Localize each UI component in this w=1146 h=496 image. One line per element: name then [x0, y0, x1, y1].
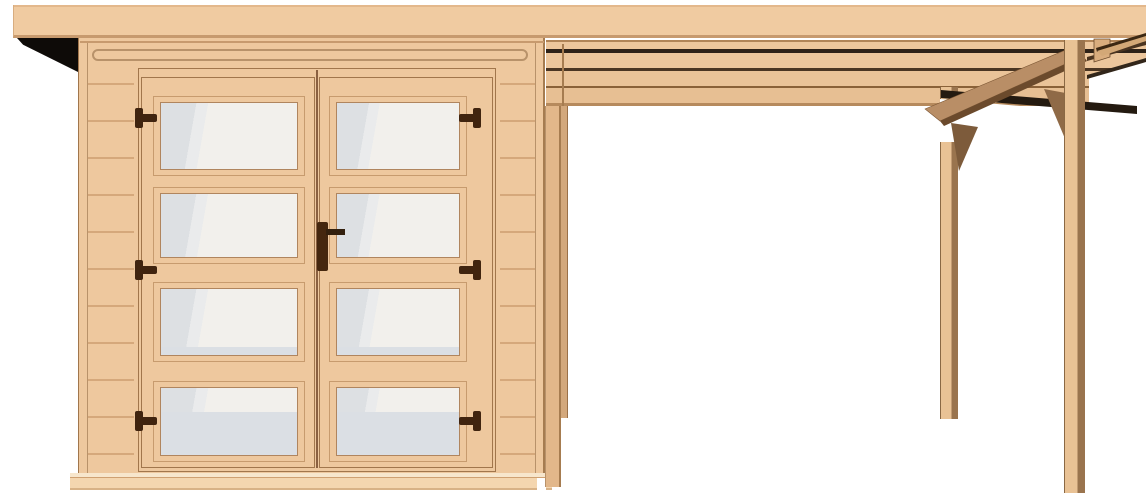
canopy-post-front-right [1064, 40, 1085, 493]
canopy-post-rear-left [561, 106, 568, 418]
canopy-corner-joinery [0, 0, 1146, 496]
knee-brace-rear-right [951, 123, 978, 171]
garden-shed-with-canopy-render [0, 0, 1146, 496]
canopy-post-front-left [545, 106, 561, 487]
